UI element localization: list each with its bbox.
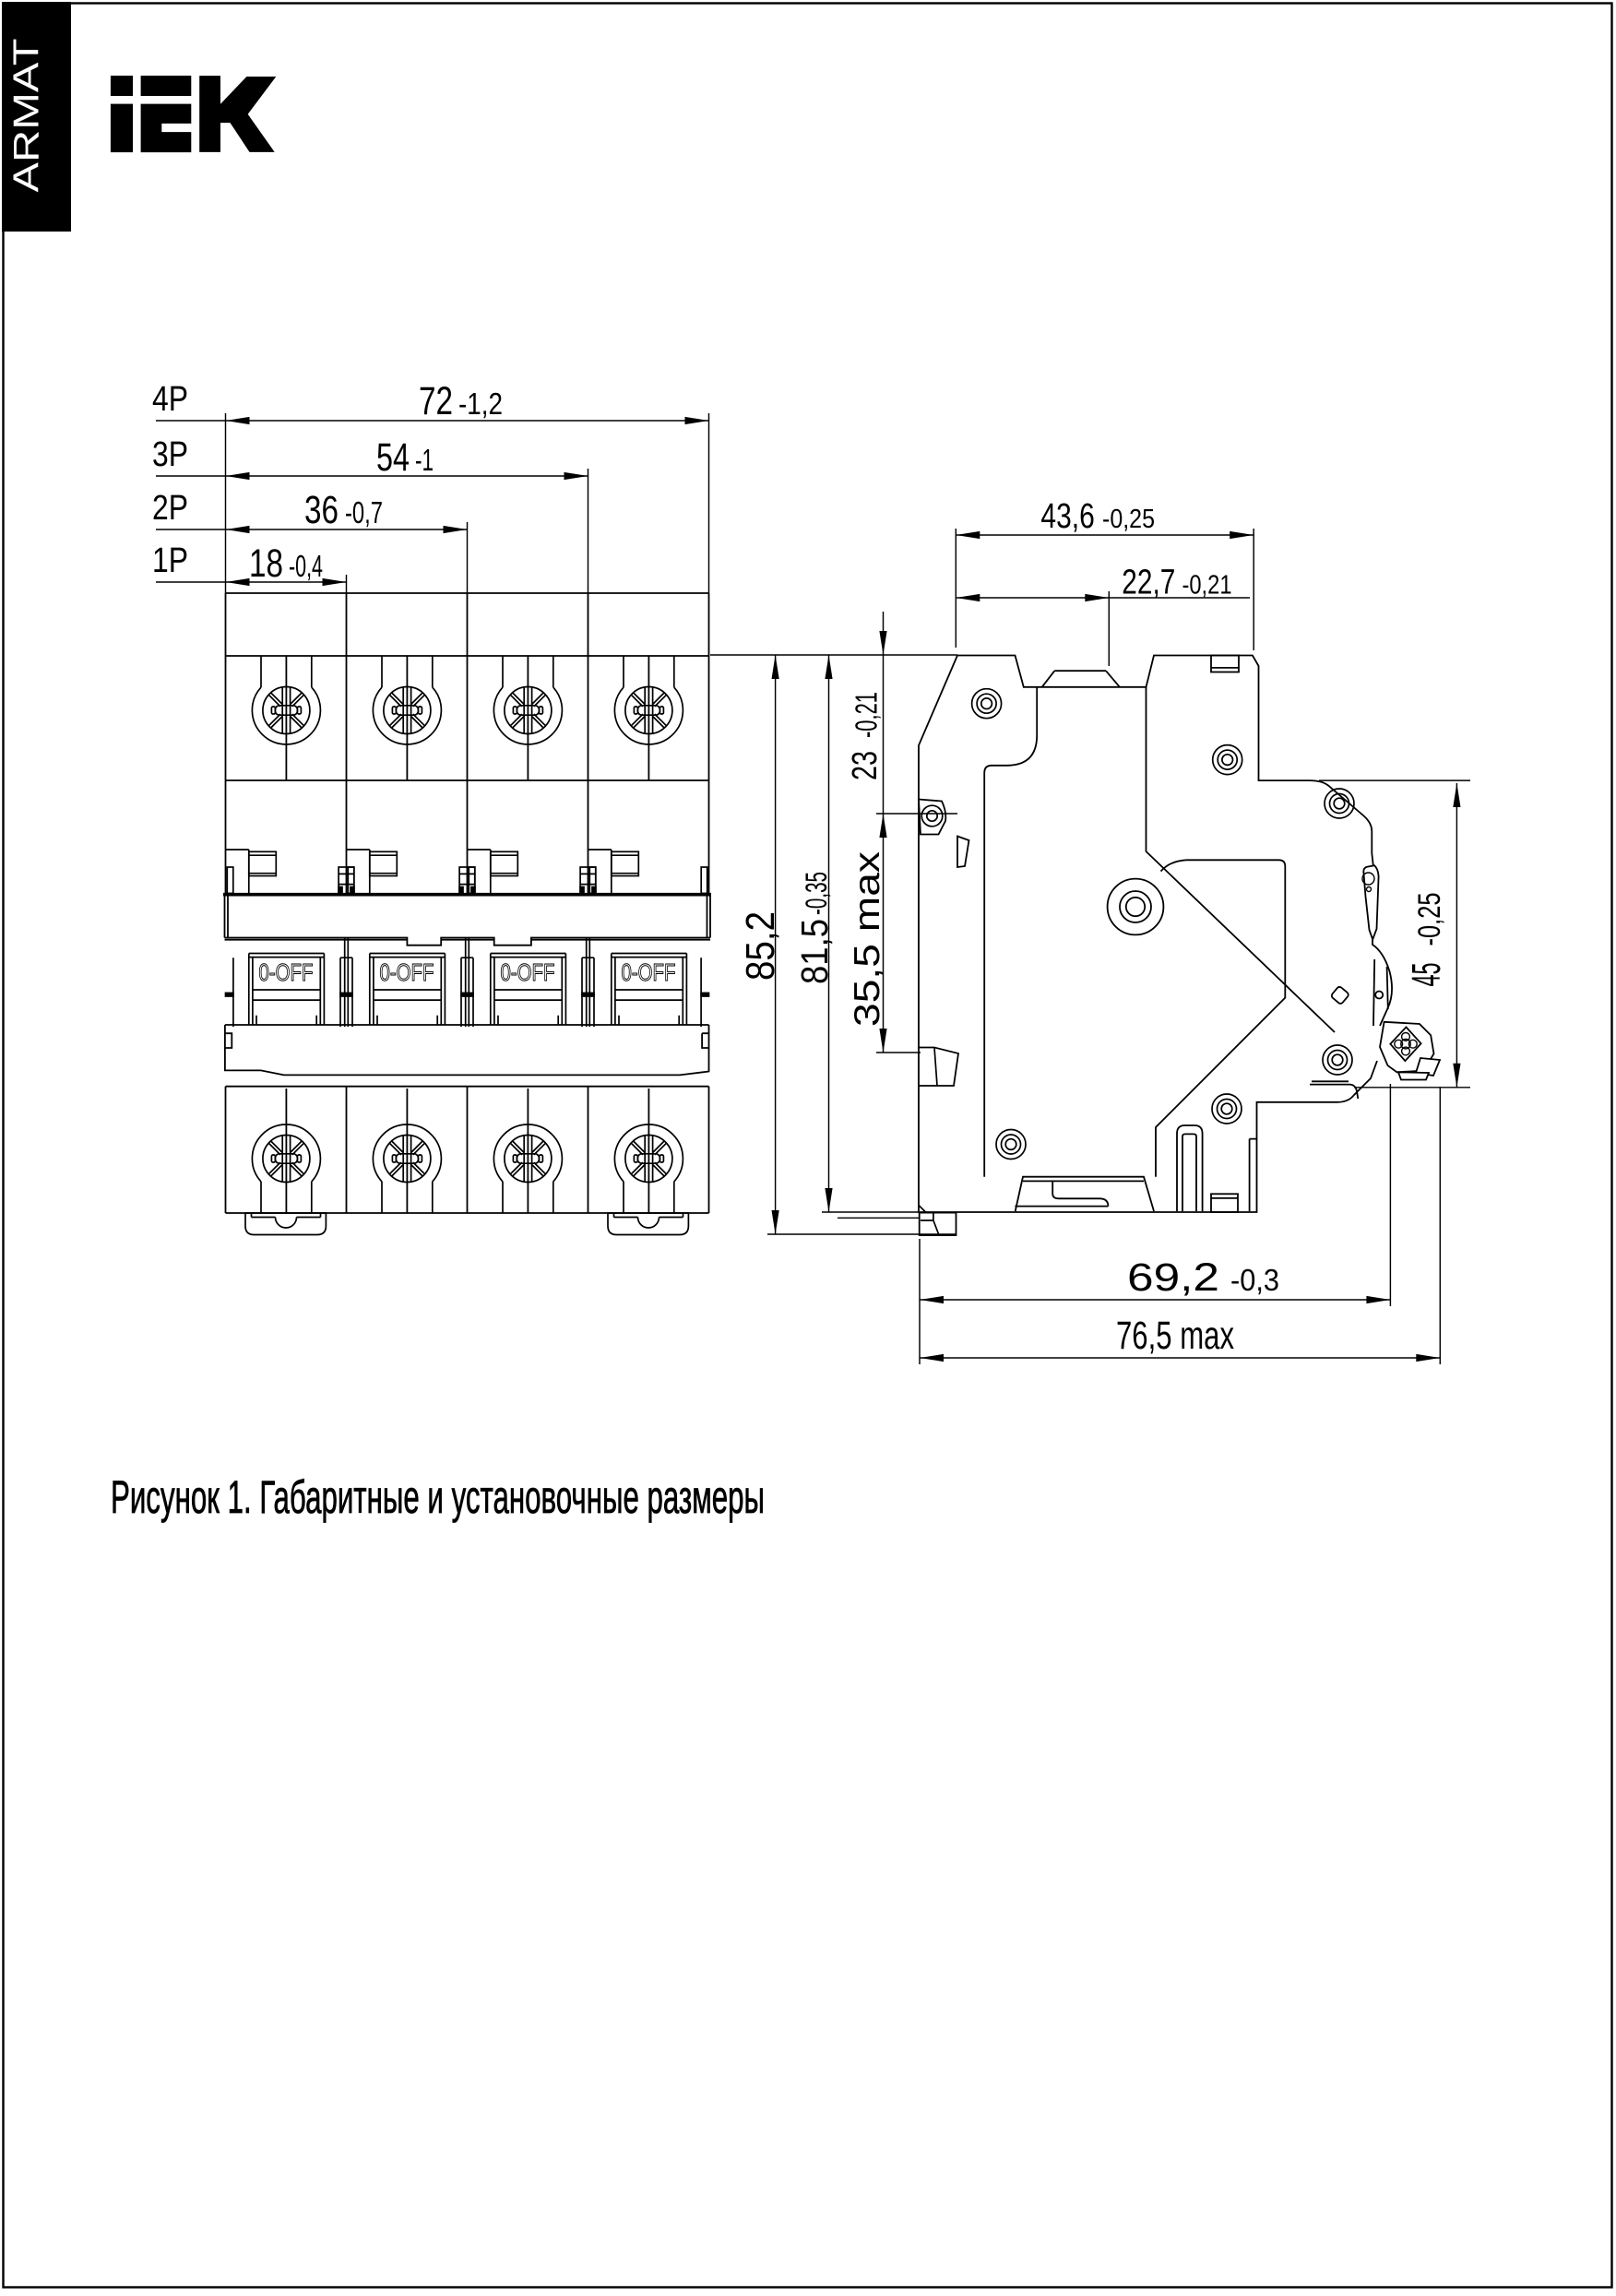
svg-text:69,2: 69,2 [1127, 1255, 1219, 1300]
svg-text:72: 72 [419, 379, 453, 423]
svg-text:76,5 max: 76,5 max [1116, 1314, 1234, 1358]
svg-text:35,5 max: 35,5 max [848, 851, 887, 1027]
svg-text:85,2: 85,2 [738, 911, 783, 981]
svg-text:43,6: 43,6 [1040, 497, 1094, 536]
svg-text:-0,3: -0,3 [1230, 1263, 1279, 1297]
svg-text:0-OFF: 0-OFF [501, 958, 555, 986]
svg-text:-0,21: -0,21 [850, 692, 884, 738]
svg-text:-0,25: -0,25 [1102, 505, 1155, 534]
svg-text:-0,4: -0,4 [289, 549, 323, 583]
svg-text:-0,21: -0,21 [1182, 571, 1232, 601]
svg-text:18: 18 [249, 541, 283, 586]
svg-text:-0,7: -0,7 [345, 495, 383, 529]
svg-text:3P: 3P [152, 435, 188, 474]
svg-text:0-OFF: 0-OFF [622, 958, 676, 986]
svg-text:4P: 4P [152, 380, 188, 419]
svg-text:81,5: 81,5 [793, 919, 836, 984]
svg-text:ARMAT: ARMAT [7, 39, 47, 193]
svg-text:-1: -1 [415, 443, 434, 477]
svg-text:-1,2: -1,2 [458, 387, 503, 421]
svg-text:23: 23 [846, 751, 885, 780]
svg-text:-0,35: -0,35 [800, 872, 833, 915]
svg-text:-0,25: -0,25 [1412, 893, 1447, 946]
svg-text:0-OFF: 0-OFF [380, 958, 434, 986]
svg-text:22,7: 22,7 [1122, 564, 1175, 602]
svg-text:45: 45 [1404, 963, 1449, 987]
svg-text:36: 36 [304, 488, 339, 532]
svg-text:54: 54 [376, 435, 410, 480]
svg-text:1P: 1P [152, 541, 188, 580]
svg-text:Рисунок 1. Габаритные и устано: Рисунок 1. Габаритные и установочные раз… [111, 1471, 765, 1523]
svg-text:2P: 2P [152, 489, 188, 528]
svg-text:0-OFF: 0-OFF [259, 958, 314, 986]
